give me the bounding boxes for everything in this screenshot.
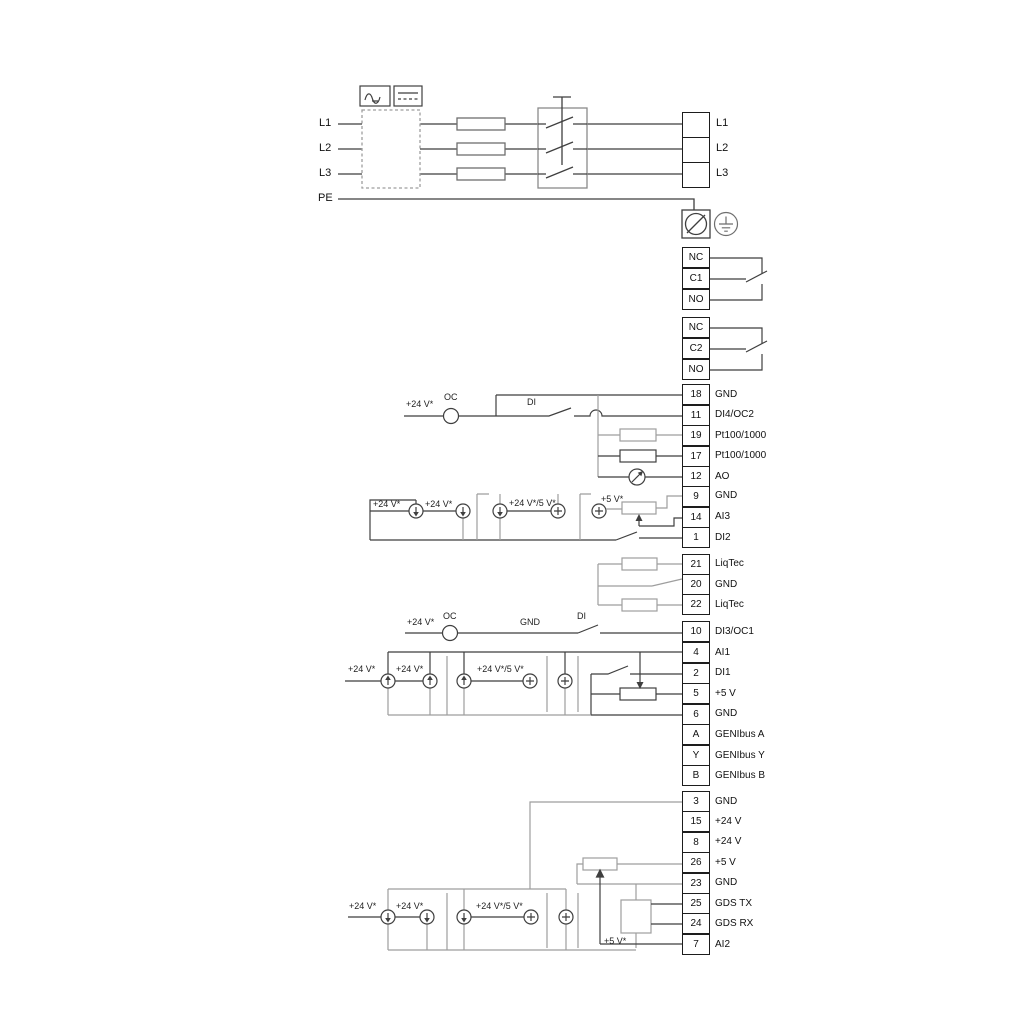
motor-label-l2: L2 bbox=[716, 142, 728, 154]
terminal-21-label: LiqTec bbox=[715, 558, 744, 570]
pt100-resistor-17 bbox=[598, 450, 682, 462]
wiring-diagram: { "power": { "in": ["L1", "L2", "L3", "P… bbox=[0, 0, 1024, 1024]
terminal-9: 9 bbox=[682, 486, 710, 507]
terminal-20-label: GND bbox=[715, 579, 737, 591]
plus24-label: +24 V* bbox=[407, 617, 434, 627]
plus24-label: +24 V* bbox=[349, 901, 376, 911]
current-source-up-icon bbox=[423, 674, 437, 688]
gds-sensor-box bbox=[621, 900, 651, 933]
ai2-potentiometer bbox=[583, 858, 617, 870]
di3-oc1-circuit bbox=[405, 625, 682, 641]
terminal-3-label: GND bbox=[715, 796, 737, 808]
plus24or5-label: +24 V*/5 V* bbox=[477, 664, 524, 674]
fuses bbox=[457, 118, 505, 180]
terminal-24: 24 bbox=[682, 913, 710, 934]
terminal-22: 22 bbox=[682, 594, 710, 615]
mains-label-pe: PE bbox=[318, 192, 333, 204]
terminal-19: 19 bbox=[682, 425, 710, 446]
terminal-1-label: DI2 bbox=[715, 532, 731, 544]
ai2-wiper-wire bbox=[600, 877, 682, 944]
terminal-14: 14 bbox=[682, 507, 710, 528]
current-source-up-icon bbox=[457, 674, 471, 688]
voltage-source-icon bbox=[524, 910, 538, 924]
di3-switch bbox=[578, 625, 682, 633]
gds-tx-rx-wires bbox=[651, 904, 682, 924]
terminal-3: 3 bbox=[682, 791, 710, 812]
terminal-15: 15 bbox=[682, 811, 710, 832]
pt100-resistor-19 bbox=[598, 429, 682, 441]
relay2-contact bbox=[710, 328, 767, 370]
current-source-down-icon bbox=[381, 910, 395, 924]
motor-terminal-l2 bbox=[682, 137, 710, 163]
terminal-10: 10 bbox=[682, 621, 710, 642]
plus24-label: +24 V* bbox=[373, 499, 400, 509]
relay2-nc-terminal: NC bbox=[682, 317, 710, 338]
terminal-23: 23 bbox=[682, 873, 710, 894]
plus24-label: +24 V* bbox=[396, 664, 423, 674]
ao-meter-icon bbox=[598, 469, 682, 485]
relay1-c1-terminal: C1 bbox=[682, 268, 710, 289]
liqtec-resistor-22 bbox=[622, 599, 657, 611]
relay2-no-terminal: NO bbox=[682, 359, 710, 380]
plus5-label: +5 V* bbox=[601, 494, 623, 504]
terminal-7: 7 bbox=[682, 934, 710, 955]
liqtec-circuit bbox=[598, 558, 682, 611]
terminal-23-label: GND bbox=[715, 877, 737, 889]
motor-terminal-l3 bbox=[682, 162, 710, 188]
terminal-12-label: AO bbox=[715, 471, 729, 483]
plus24-label: +24 V* bbox=[406, 399, 433, 409]
terminal-17-label: Pt100/1000 bbox=[715, 450, 766, 462]
mains-label-l3: L3 bbox=[319, 167, 331, 179]
di-label: DI bbox=[527, 397, 536, 407]
mains-label-l2: L2 bbox=[319, 142, 331, 154]
terminal-a-label: GENIbus A bbox=[715, 729, 764, 741]
terminal-10-label: DI3/OC1 bbox=[715, 626, 754, 638]
terminal-7-label: AI2 bbox=[715, 939, 730, 951]
voltage-source-icon bbox=[523, 674, 537, 688]
dc-symbol-icon bbox=[394, 86, 422, 106]
terminal-11: 11 bbox=[682, 405, 710, 426]
voltage-source-icon bbox=[558, 674, 572, 688]
oc2-open-collector-icon bbox=[444, 409, 459, 424]
ai2-gds-circuit bbox=[348, 802, 682, 950]
relay1-no-terminal: NO bbox=[682, 289, 710, 310]
ac-symbol-icon bbox=[360, 86, 390, 106]
mains-wires bbox=[338, 124, 694, 210]
terminal-22-label: LiqTec bbox=[715, 599, 744, 611]
terminal-9-label: GND bbox=[715, 490, 737, 502]
current-source-up-icon bbox=[381, 674, 395, 688]
voltage-source-icon bbox=[559, 910, 573, 924]
motor-terminal-l1 bbox=[682, 112, 710, 138]
motor-label-l3: L3 bbox=[716, 167, 728, 179]
terminal-26: 26 bbox=[682, 852, 710, 873]
terminal-8: 8 bbox=[682, 832, 710, 853]
terminal-15-label: +24 V bbox=[715, 816, 741, 828]
terminal-8-label: +24 V bbox=[715, 836, 741, 848]
di1-switch bbox=[591, 666, 682, 674]
terminal-b-label: GENIbus B bbox=[715, 770, 765, 782]
terminal-y-label: GENIbus Y bbox=[715, 750, 765, 762]
terminal-2: 2 bbox=[682, 663, 710, 684]
di4-switch bbox=[496, 408, 682, 416]
oc-label: OC bbox=[443, 611, 457, 621]
terminal-5: 5 bbox=[682, 683, 710, 704]
liqtec-resistor-21 bbox=[622, 558, 657, 570]
terminal-14-label: AI3 bbox=[715, 511, 730, 523]
terminal-20: 20 bbox=[682, 574, 710, 595]
earth-ground-icon bbox=[715, 213, 738, 236]
terminal-12: 12 bbox=[682, 466, 710, 487]
current-source-down-icon bbox=[456, 504, 470, 518]
di-label: DI bbox=[577, 611, 586, 621]
pe-terminal-icon bbox=[682, 210, 710, 238]
gnd-label: GND bbox=[520, 617, 540, 627]
plus24-label: +24 V* bbox=[396, 901, 423, 911]
mains-label-l1: L1 bbox=[319, 117, 331, 129]
terminal-18-label: GND bbox=[715, 389, 737, 401]
plus24or5-label: +24 V*/5 V* bbox=[476, 901, 523, 911]
terminal-25: 25 bbox=[682, 893, 710, 914]
diagram-graphics bbox=[0, 0, 1024, 1024]
terminal-21: 21 bbox=[682, 554, 710, 575]
terminal-24-label: GDS RX bbox=[715, 918, 753, 930]
terminal-5-label: +5 V bbox=[715, 688, 736, 700]
current-source-down-icon bbox=[457, 910, 471, 924]
terminal-18: 18 bbox=[682, 384, 710, 405]
ai1-potentiometer bbox=[591, 682, 682, 700]
pt100-ao-circuit bbox=[598, 395, 682, 485]
terminal-17: 17 bbox=[682, 446, 710, 467]
pe-wire bbox=[338, 199, 694, 210]
terminal-26-label: +5 V bbox=[715, 857, 736, 869]
relay1-nc-terminal: NC bbox=[682, 247, 710, 268]
relay1-contact bbox=[710, 258, 767, 300]
terminal-11-label: DI4/OC2 bbox=[715, 409, 754, 421]
ai1-di1-circuit bbox=[345, 652, 682, 715]
terminal-y: Y bbox=[682, 745, 710, 766]
plus24-label: +24 V* bbox=[425, 499, 452, 509]
terminal-6: 6 bbox=[682, 704, 710, 725]
terminal-4-label: AI1 bbox=[715, 647, 730, 659]
voltage-source-icon bbox=[592, 504, 606, 518]
plus24-label: +24 V* bbox=[348, 664, 375, 674]
terminal-25-label: GDS TX bbox=[715, 898, 752, 910]
terminal-2-label: DI1 bbox=[715, 667, 731, 679]
current-source-down-icon bbox=[493, 504, 507, 518]
terminal-b: B bbox=[682, 765, 710, 786]
oc1-open-collector-icon bbox=[443, 626, 458, 641]
plus24or5-label: +24 V*/5 V* bbox=[509, 498, 556, 508]
terminal-a: A bbox=[682, 724, 710, 745]
terminal-19-label: Pt100/1000 bbox=[715, 430, 766, 442]
terminal-1: 1 bbox=[682, 527, 710, 548]
motor-label-l1: L1 bbox=[716, 117, 728, 129]
current-source-down-icon bbox=[409, 504, 423, 518]
terminal-6-label: GND bbox=[715, 708, 737, 720]
oc-label: OC bbox=[444, 392, 458, 402]
emc-filter-box bbox=[362, 110, 420, 188]
plus5-label: +5 V* bbox=[604, 936, 626, 946]
terminal-4: 4 bbox=[682, 642, 710, 663]
main-switch bbox=[538, 97, 587, 188]
current-source-down-icon bbox=[420, 910, 434, 924]
relay2-c2-terminal: C2 bbox=[682, 338, 710, 359]
